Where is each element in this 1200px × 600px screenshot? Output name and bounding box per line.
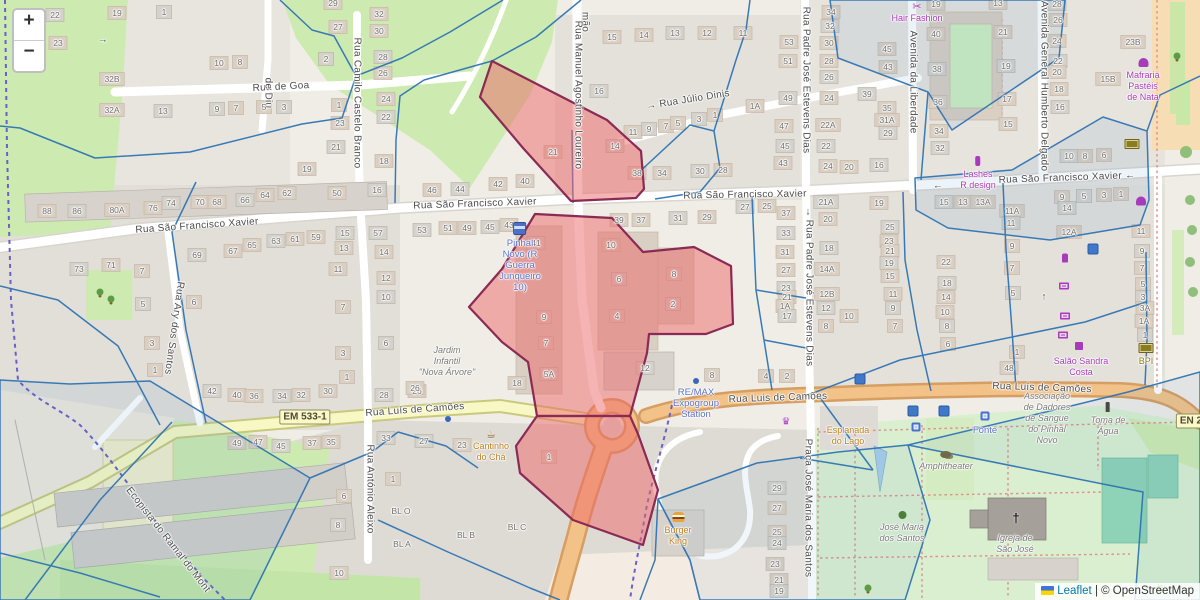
fountain-icon	[912, 423, 921, 432]
plant-icon	[865, 585, 872, 592]
zoom-in-button[interactable]: +	[14, 10, 44, 41]
zoom-out-button[interactable]: −	[14, 41, 44, 71]
road-shield: EM 533-1	[279, 410, 330, 425]
plant-icon	[97, 289, 104, 296]
map-container[interactable]: Rua de Goade Diumão→ Rua Júlio DinisRua …	[0, 0, 1200, 600]
laptop-icon	[1060, 313, 1070, 320]
bluesq-icon	[1088, 244, 1099, 255]
bluesq-icon	[855, 374, 866, 385]
laptop-icon	[1059, 283, 1069, 290]
road-shield: EN 2	[1176, 414, 1200, 429]
cross-icon: †	[1012, 511, 1019, 526]
bar-icon	[1075, 342, 1083, 350]
base-map	[0, 0, 1200, 600]
osm-link[interactable]: © OpenStreetMap	[1101, 585, 1194, 597]
cupcake-icon	[1136, 197, 1146, 206]
leaflet-link[interactable]: Leaflet	[1057, 585, 1092, 597]
ukraine-flag-icon	[1041, 586, 1054, 595]
attribution-separator: |	[1095, 585, 1098, 597]
plant-icon	[108, 296, 115, 303]
attribution-bar: Leaflet | © OpenStreetMap	[1035, 583, 1200, 600]
perfume-icon	[1062, 254, 1068, 263]
money-icon	[1125, 139, 1140, 149]
zoom-control: + −	[12, 8, 46, 73]
crown-icon: ♛	[782, 417, 791, 428]
dot-blue-icon	[445, 416, 451, 422]
bluesq-icon	[908, 406, 919, 417]
laptop-icon	[1058, 332, 1068, 339]
bluesq-icon	[939, 406, 950, 417]
plant-icon	[1174, 53, 1181, 60]
fountain-icon	[981, 412, 990, 421]
